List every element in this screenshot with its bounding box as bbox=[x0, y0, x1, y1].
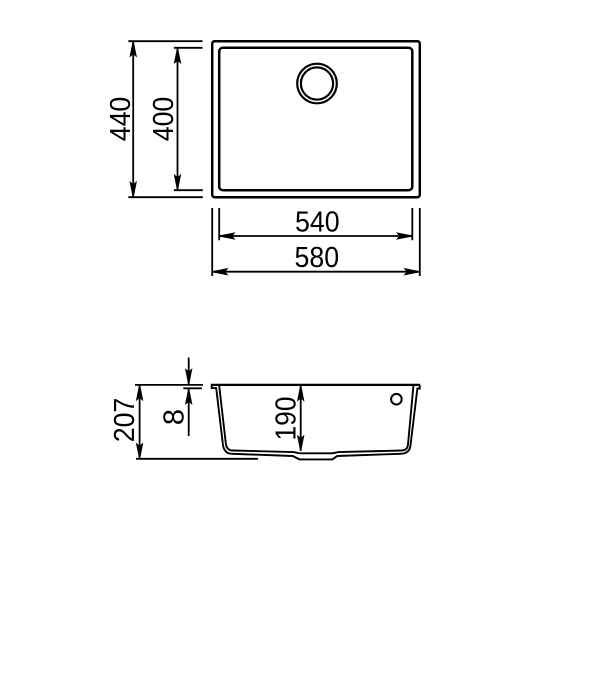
svg-text:400: 400 bbox=[148, 97, 180, 142]
svg-text:540: 540 bbox=[295, 207, 340, 239]
svg-text:207: 207 bbox=[109, 398, 141, 443]
svg-text:580: 580 bbox=[295, 242, 340, 274]
svg-text:440: 440 bbox=[105, 97, 137, 142]
svg-text:190: 190 bbox=[270, 397, 302, 441]
svg-text:8: 8 bbox=[159, 409, 191, 425]
